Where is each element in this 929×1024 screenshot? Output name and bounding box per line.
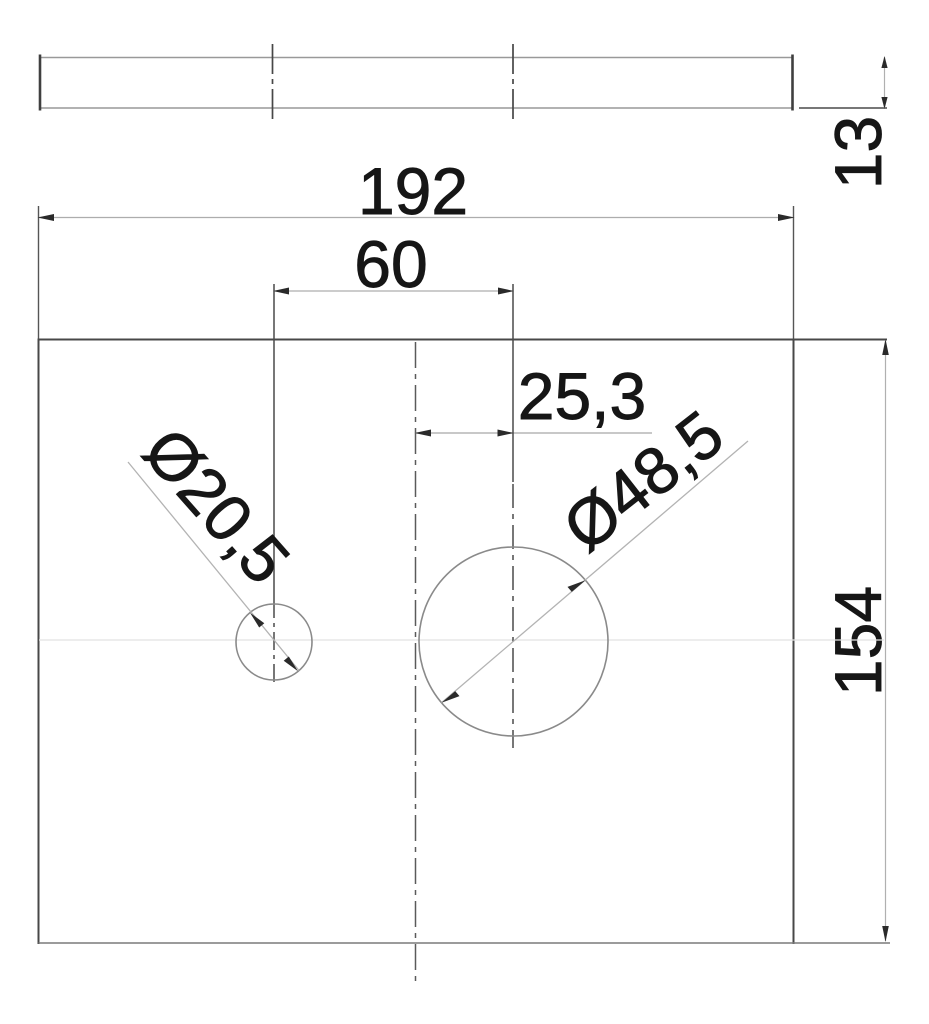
svg-text:60: 60: [354, 227, 427, 301]
svg-text:192: 192: [358, 154, 468, 228]
svg-text:13: 13: [821, 116, 895, 189]
svg-text:25,3: 25,3: [518, 359, 646, 433]
svg-text:154: 154: [821, 586, 895, 696]
